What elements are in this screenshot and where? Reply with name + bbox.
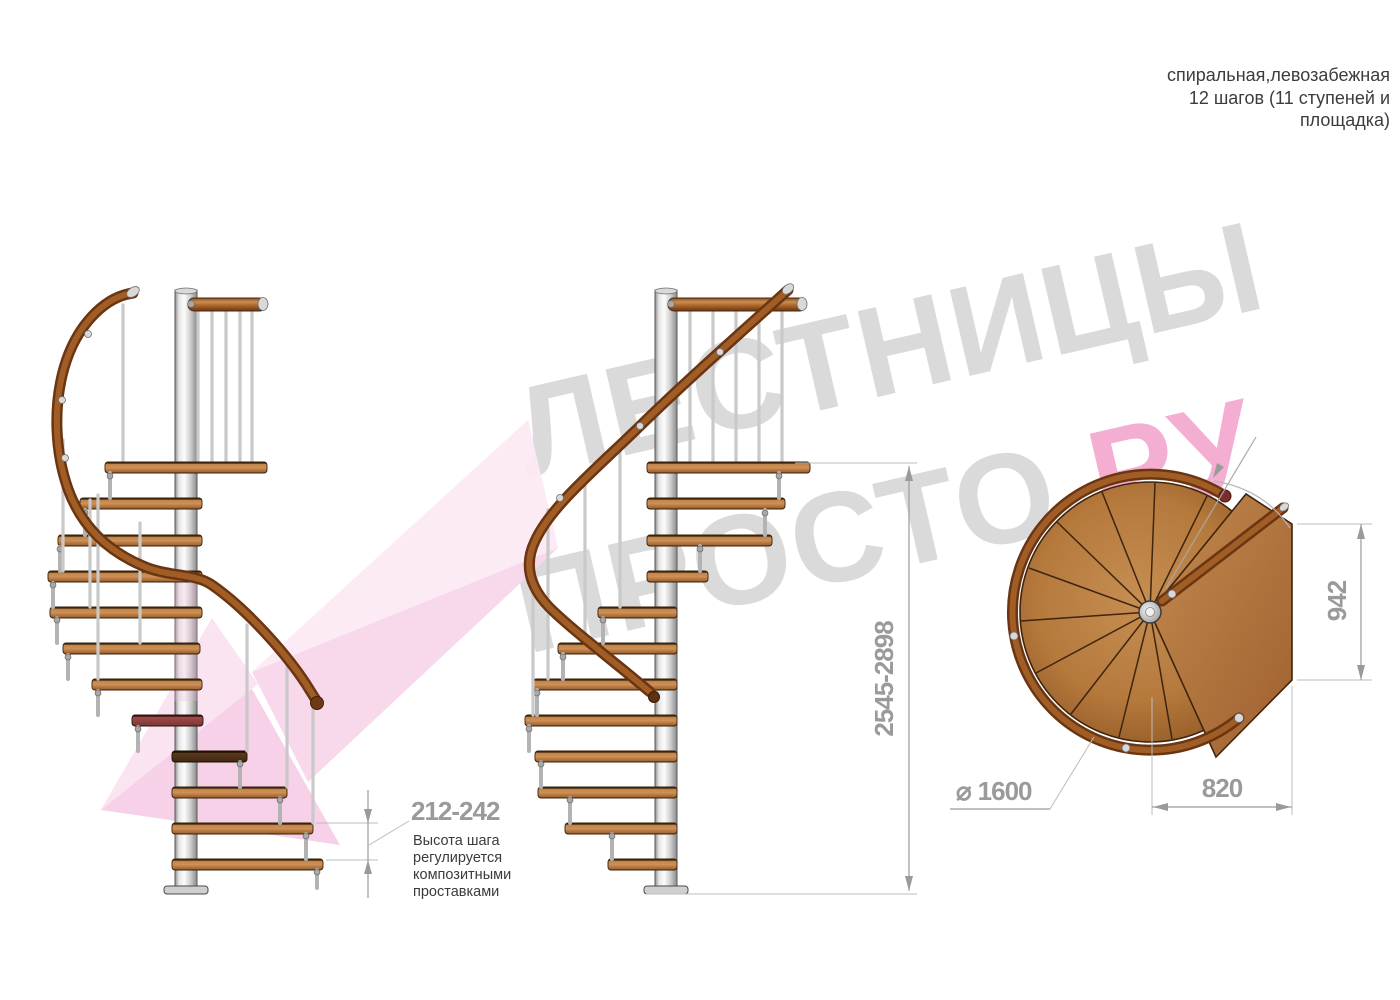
tread-support-posts bbox=[526, 473, 782, 859]
rail-end-cap bbox=[258, 298, 268, 311]
title-line-2: 12 шагов (11 ступеней и bbox=[1030, 87, 1390, 110]
step-height-value: 212-242 bbox=[411, 796, 500, 826]
rail-end-cap bbox=[797, 298, 807, 311]
dimension-step-height: 212-242 Высота шага регулируется компози… bbox=[316, 790, 511, 900]
platform-top-rail bbox=[188, 298, 266, 311]
pole-top-cap bbox=[655, 288, 677, 294]
tread bbox=[172, 751, 247, 762]
diameter-label: ⌀1600 bbox=[956, 776, 1032, 806]
handrail-end-ball bbox=[649, 692, 660, 703]
step-height-note: регулируется bbox=[413, 850, 502, 866]
rail-connector bbox=[85, 331, 92, 338]
plan-view bbox=[1010, 437, 1292, 757]
platform-width-value: 820 bbox=[1202, 773, 1243, 803]
tread bbox=[647, 571, 708, 582]
title-line-1: спиральная,левозабежная bbox=[1030, 64, 1390, 87]
leader-line bbox=[369, 821, 409, 845]
tread bbox=[132, 715, 203, 726]
tread bbox=[172, 859, 323, 870]
rail-connector bbox=[637, 423, 644, 430]
total-height-value: 2545-2898 bbox=[869, 621, 899, 737]
dimension-platform-depth: 942 bbox=[1297, 524, 1372, 680]
rail-connector bbox=[59, 397, 66, 404]
dim-arrow-left bbox=[1153, 803, 1168, 811]
tread bbox=[92, 679, 202, 690]
dimension-diameter: ⌀1600 bbox=[950, 737, 1094, 809]
watermark-arrow bbox=[101, 420, 558, 845]
drawing-sheet: ЛЕСТНИЦЫ ПРОСТО.РУ bbox=[0, 0, 1400, 1000]
step-height-note: проставками bbox=[413, 884, 499, 900]
platform-depth-value: 942 bbox=[1322, 580, 1352, 621]
staircase-drawing: 2545-2898 212-242 Высота шага регулирует… bbox=[0, 0, 1400, 1000]
rotation-arrowhead bbox=[1213, 463, 1224, 478]
plan-rail-connector bbox=[1010, 632, 1018, 640]
dim-arrow-down bbox=[905, 876, 913, 891]
base-flange bbox=[164, 886, 208, 894]
platform-tread bbox=[647, 462, 810, 473]
rail-joint bbox=[188, 301, 195, 308]
tread bbox=[538, 787, 677, 798]
side-view-front bbox=[525, 282, 810, 894]
handrail-end-ball bbox=[311, 697, 324, 710]
rail-connector bbox=[717, 349, 724, 356]
rail-connector bbox=[62, 455, 69, 462]
tread bbox=[598, 607, 677, 618]
dim-arrow-up bbox=[905, 466, 913, 481]
base-flange bbox=[644, 886, 688, 894]
plan-center-pole-core bbox=[1146, 608, 1155, 617]
tread bbox=[63, 643, 200, 654]
tread bbox=[172, 823, 313, 834]
tread bbox=[535, 751, 677, 762]
dim-arrow-right bbox=[1276, 803, 1291, 811]
rail-connector bbox=[557, 495, 564, 502]
tread bbox=[50, 607, 202, 618]
tread bbox=[647, 498, 785, 509]
title-line-3: площадка) bbox=[1030, 109, 1390, 132]
tread bbox=[533, 679, 677, 690]
plan-rail-joint bbox=[1168, 590, 1176, 598]
dim-arrow-down bbox=[364, 809, 372, 823]
diameter-value: 1600 bbox=[978, 776, 1032, 806]
dim-arrow-up bbox=[1357, 524, 1365, 539]
rail-joint bbox=[668, 301, 675, 308]
dim-arrow-up bbox=[364, 860, 372, 874]
plan-rail-connector bbox=[1122, 744, 1130, 752]
plan-handrail-end-fitting bbox=[1235, 714, 1244, 723]
tread bbox=[608, 859, 677, 870]
tread bbox=[558, 643, 677, 654]
tread bbox=[565, 823, 677, 834]
diameter-symbol: ⌀ bbox=[956, 776, 972, 806]
platform-tread bbox=[105, 462, 267, 473]
center-pole bbox=[655, 290, 677, 890]
leader-line bbox=[1050, 737, 1094, 809]
dimension-total-height: 2545-2898 bbox=[646, 463, 917, 894]
title-block: спиральная,левозабежная 12 шагов (11 сту… bbox=[1030, 64, 1390, 132]
step-height-note: Высота шага bbox=[413, 833, 500, 849]
dim-arrow-down bbox=[1357, 665, 1365, 680]
tread bbox=[58, 535, 202, 546]
platform-top-rail bbox=[668, 298, 806, 311]
tread bbox=[525, 715, 677, 726]
pole-top-cap bbox=[175, 288, 197, 294]
tread bbox=[172, 787, 287, 798]
tread bbox=[647, 535, 772, 546]
step-height-note: композитными bbox=[413, 867, 511, 883]
